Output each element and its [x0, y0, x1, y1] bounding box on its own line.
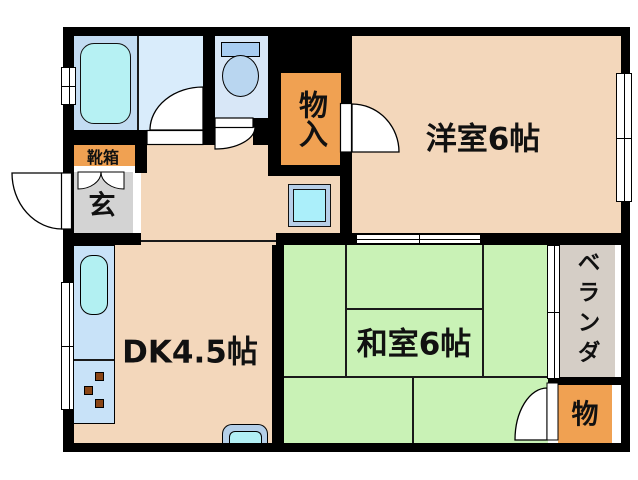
- entrance-step: [133, 172, 141, 233]
- window-tatami-veranda: [547, 245, 560, 379]
- wall-bath-toilet: [203, 36, 215, 145]
- floorplan-canvas: 洋室6帖 和室6帖 DK4.5帖 物入 靴箱 玄 ベランダ 物: [0, 0, 638, 480]
- window-western-right: [616, 73, 632, 202]
- tatami-floor: [284, 245, 548, 443]
- tatami-closet-gap-right: [612, 385, 621, 443]
- tatami-line-v1: [345, 245, 347, 377]
- kitchen-sink: [80, 255, 108, 315]
- entrance-area: [72, 172, 133, 233]
- wall-below-entrance: [63, 233, 141, 245]
- wash-basin-inner: [229, 431, 262, 443]
- wall-veranda-bottom: [548, 377, 630, 385]
- wall-bath-bottom: [63, 130, 147, 145]
- washing-machine-inner: [293, 189, 326, 222]
- tatami-line-h1: [346, 308, 483, 310]
- veranda-area: [558, 245, 615, 377]
- wall-hall-closet-right: [341, 36, 352, 103]
- hall-closet-box: [281, 73, 341, 165]
- tatami-closet-box: [558, 385, 612, 443]
- sliding-door-western-japanese: [357, 233, 480, 245]
- washroom: [138, 36, 203, 130]
- wall-shoe-right: [135, 145, 147, 173]
- shoe-cabinet-box: [72, 145, 137, 166]
- wall-toilet-block: [253, 118, 268, 145]
- tatami-line-v2: [482, 245, 484, 377]
- stove-burner-1: [95, 372, 104, 381]
- wall-tatami-top-left: [276, 233, 360, 245]
- wall-bottom: [63, 443, 630, 452]
- window-bath-left: [61, 67, 76, 105]
- hall-dk-boundary-line: [141, 240, 276, 242]
- tatami-line-v3: [412, 377, 414, 443]
- tatami-line-h2: [284, 376, 548, 378]
- toilet-bowl: [222, 55, 259, 97]
- kitchen-counter-divider: [74, 359, 114, 361]
- stove-burner-3: [95, 399, 104, 408]
- stove-burner-2: [84, 386, 93, 395]
- entrance-door-arc: [12, 173, 62, 229]
- bathtub: [80, 43, 131, 124]
- wall-below-western-door: [340, 152, 352, 245]
- bath-divider-line: [137, 36, 139, 130]
- wall-top: [63, 27, 630, 36]
- wall-dk-tatami: [272, 245, 284, 443]
- wall-toilet-right: [268, 36, 281, 165]
- wall-tatami-top-right: [480, 233, 630, 245]
- wall-above-hall-closet: [281, 36, 341, 73]
- tatami-closet-gap-left: [548, 385, 558, 443]
